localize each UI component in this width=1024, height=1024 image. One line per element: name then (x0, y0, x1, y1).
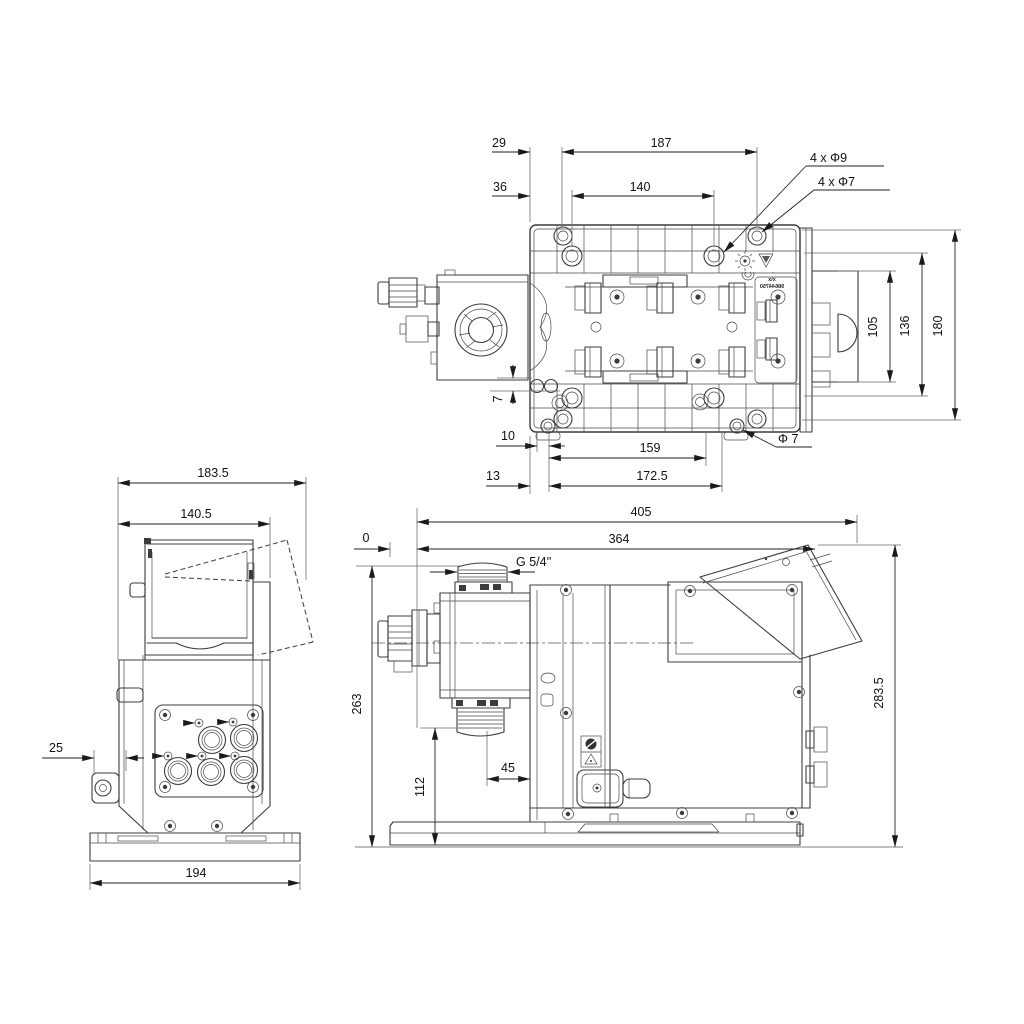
discharge-connection (455, 563, 512, 593)
dim-172-5: 172.5 (549, 469, 722, 486)
cable-gland-side (378, 610, 440, 672)
side-lug-upper (130, 583, 145, 597)
dim-183-5-label: 183.5 (197, 466, 228, 480)
display-cover-tilted (700, 545, 862, 659)
plate-marking-serial: 98644750 (760, 284, 784, 290)
display-recess (668, 582, 802, 662)
callout-phi7-label: Φ 7 (778, 432, 798, 446)
dim-13: 13 (486, 469, 530, 486)
dim-7-label: 7 (491, 395, 505, 402)
dim-140: 140 (572, 180, 714, 196)
dim-25: 25 (42, 741, 144, 758)
drain-connection (577, 770, 650, 807)
front-view: 183.5 140.5 25 194 (42, 466, 313, 890)
dim-136: 136 (898, 253, 922, 396)
dim-29: 29 (492, 136, 530, 152)
dim-7: 7 (490, 365, 560, 404)
dim-0-label: 0 (363, 531, 370, 545)
gear-icon (735, 251, 755, 271)
dim-263-label: 263 (350, 694, 364, 715)
pump-housing-side (530, 545, 862, 822)
mounting-plate: x/x 98644750 (530, 225, 800, 440)
mounting-holes (531, 227, 767, 433)
dim-159: 159 (549, 441, 706, 458)
dim-36: 36 (492, 180, 530, 196)
control-knobs-side (806, 727, 827, 787)
dim-36-label: 36 (493, 180, 507, 194)
dim-45-label: 45 (501, 761, 515, 775)
dim-0: 0 (354, 531, 390, 549)
suction-connection (452, 698, 510, 736)
dim-136-label: 136 (898, 316, 912, 337)
base-front (90, 821, 300, 862)
dim-25-label: 25 (49, 741, 63, 755)
dim-283-5-label: 283.5 (872, 677, 886, 708)
pump-clamps-top (575, 283, 777, 377)
dosing-head-side (372, 563, 695, 736)
dim-112: 112 (413, 728, 435, 845)
callout-4xd7-label: 4 x Φ7 (818, 175, 855, 189)
dim-263: 263 (350, 566, 372, 847)
drive-end-top (431, 270, 528, 380)
dim-187-label: 187 (651, 136, 672, 150)
dim-405-label: 405 (631, 505, 652, 519)
dim-364-label: 364 (609, 532, 630, 546)
callout-4xd9-label: 4 x Φ9 (810, 151, 847, 165)
side-lug-lower (117, 688, 143, 702)
bleed-valve (455, 304, 507, 356)
control-cube-front (130, 538, 270, 660)
technical-drawing-page: x/x 98644750 29 187 36 140 4 x Φ9 4 x Φ7… (0, 0, 1024, 1024)
dim-194: 194 (90, 866, 300, 883)
dim-194-label: 194 (186, 866, 207, 880)
dim-183-5: 183.5 (118, 466, 306, 483)
side-view: 405 364 0 G 5/4'' 263 283.5 112 45 (350, 505, 903, 847)
plate-marking-top: x/x (768, 277, 777, 283)
dim-283-5: 283.5 (872, 545, 895, 847)
dim-364: 364 (417, 532, 815, 549)
dim-180: 180 (931, 230, 955, 420)
dim-10-label: 10 (501, 429, 515, 443)
wall-bracket (92, 773, 119, 803)
dim-405: 405 (417, 505, 857, 522)
cable-gland-top (378, 278, 439, 307)
dim-105-label: 105 (866, 317, 880, 338)
dim-112-label: 112 (413, 777, 427, 797)
signal-connectors (165, 725, 258, 786)
top-view: x/x 98644750 29 187 36 140 4 x Φ9 4 x Φ7… (378, 136, 961, 494)
base-side (390, 814, 803, 845)
vent-valve-top (400, 316, 439, 342)
dim-thread-label: G 5/4'' (516, 555, 551, 569)
dim-13-label: 13 (486, 469, 500, 483)
dim-172-5-label: 172.5 (636, 469, 667, 483)
click-wheel (838, 314, 857, 352)
dim-140-5: 140.5 (118, 507, 270, 524)
callout-4xd7: 4 x Φ7 (762, 175, 890, 232)
warning-label (581, 736, 601, 767)
dim-140-label: 140 (630, 180, 651, 194)
lower-body-front (117, 655, 270, 833)
dim-105: 105 (866, 271, 890, 382)
dim-140-5-label: 140.5 (180, 507, 211, 521)
front-view-dimensions: 183.5 140.5 25 194 (42, 466, 306, 890)
dim-159-label: 159 (640, 441, 661, 455)
dim-187: 187 (562, 136, 757, 152)
connection-panel (155, 705, 263, 797)
technical-drawing: x/x 98644750 29 187 36 140 4 x Φ9 4 x Φ7… (0, 0, 1024, 1024)
dim-29-label: 29 (492, 136, 506, 150)
control-end-top (800, 228, 858, 432)
cover-hinge-panel (253, 582, 270, 660)
plate-flange-curve (530, 283, 547, 371)
dim-180-label: 180 (931, 316, 945, 337)
dim-45: 45 (487, 761, 530, 779)
